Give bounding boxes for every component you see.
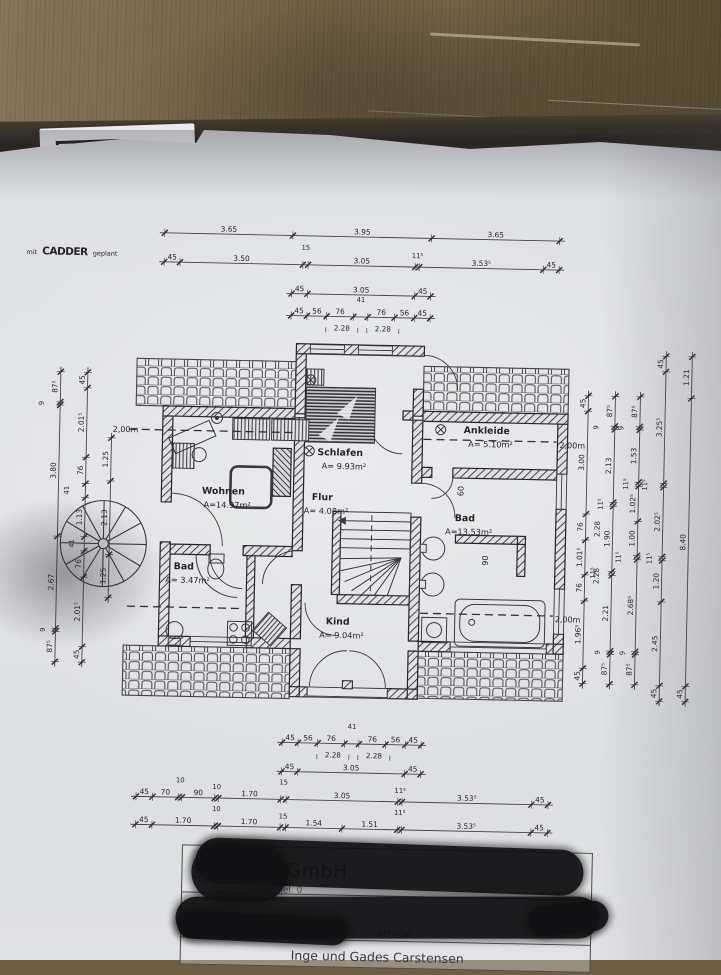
dimension-label: 45 (139, 815, 149, 824)
dimension-label: 45 (578, 398, 587, 408)
floor-plan-drawing: 3.653.953.65453.50153.0511⁵3.53⁵45453.05… (0, 0, 721, 967)
roof-hatch-top-left (136, 358, 296, 408)
plan-annotation: 90 (481, 555, 490, 565)
dimension-label: 9 (617, 426, 625, 430)
redaction-mark (191, 843, 288, 903)
sub-dimension-label: 2.28 (593, 520, 602, 537)
dimension-label: 70 (161, 787, 171, 796)
dimension-label: 15 (301, 244, 310, 252)
dimension-label: 1.70 (241, 817, 258, 826)
dimension-label: 3.53⁵ (472, 259, 492, 268)
dimension-label: 76 (74, 559, 83, 569)
dimension-label: 87⁵ (50, 380, 59, 393)
dimension-label: 2.45 (650, 635, 659, 652)
dimension-chain: 453.0545 (276, 762, 425, 779)
dimension-label: 56 (391, 735, 401, 744)
dimension-label: 1.90 (602, 530, 611, 547)
door-mullion (342, 681, 352, 689)
dimension-label: 2.01⁵ (73, 602, 82, 622)
dimension-label: 1.51 (361, 820, 378, 829)
dimension-label: 45 (167, 252, 177, 261)
dimension-label: 9 (619, 651, 627, 655)
dimension-label: 45 (285, 762, 295, 771)
dimension-label: 1.54 (306, 818, 323, 827)
dimension-label: 2.21 (601, 605, 610, 622)
balcony-door-arc (348, 651, 386, 689)
dimension-chain: 451.70101.70151.541.5111⁵3.53⁵45 (130, 803, 552, 837)
dimension-label: 11⁵ (614, 551, 622, 563)
dimension-label: 3.53⁵ (456, 822, 476, 831)
sub-dimension-label: 2.28 (366, 751, 383, 760)
dimension-chain: 3.653.953.65 (160, 223, 565, 245)
dimension-label: 3.05 (334, 791, 351, 800)
dimension-label: 45 (534, 823, 544, 832)
dimension-label: 56 (400, 308, 410, 317)
roof-hatch-bottom-left (122, 645, 290, 698)
dimension-label: 76 (335, 307, 345, 316)
dimension-label: 1.96⁵ (573, 625, 582, 645)
bathtub (454, 599, 545, 648)
dimension-label: 3.25⁵ (655, 418, 664, 438)
ceiling-light-symbol (304, 446, 314, 456)
dimension-label: 8.40 (678, 534, 687, 551)
photo-of-floor-plan: { "logo": {"prefix": "mit", "brand": "CA… (0, 0, 721, 960)
balcony-door-arc (309, 650, 347, 688)
dimension-label: 3.05 (353, 285, 370, 294)
room-area: A= 9.93m² (322, 461, 367, 472)
door-arc (431, 477, 452, 498)
room-name: Bad (455, 513, 475, 524)
dimension-label: 3.05 (353, 256, 370, 265)
dimension-label: 76 (576, 522, 585, 532)
plan-annotation: 2,00m (113, 425, 139, 435)
dimension-label: 1.02⁵ (628, 494, 637, 514)
dimension-label: 45 (72, 649, 81, 659)
room-area: A= 5.10m² (468, 439, 513, 450)
dimension-label: 2.02⁵ (653, 512, 662, 532)
room-name: Kind (326, 616, 350, 627)
washbasin (420, 537, 445, 561)
dimension-label: 1.25 (98, 567, 107, 584)
dimension-label: 45 (675, 689, 684, 699)
dimension-label: 11⁵ (622, 478, 630, 490)
wardrobe (271, 419, 308, 441)
dimension-label: 3.95 (354, 227, 371, 236)
washing-machine (421, 617, 447, 643)
dimension-chain: 1.252.131.25 (98, 433, 116, 603)
dimension-chain: 453.00761.01⁵761.96⁵45 (572, 391, 592, 689)
dimension-label: 1.20 (651, 573, 660, 590)
room-area: A=14.97m² (203, 499, 250, 510)
dimension-label: 45 (649, 688, 658, 698)
plan-annotation: 2,00m (559, 441, 585, 451)
dimension-label: 2.67 (46, 574, 55, 591)
dimension-label: 45 (535, 795, 545, 804)
dimension-chain: 45701090101.70153.0511⁵3.53⁵45 (131, 775, 553, 809)
window (310, 344, 344, 354)
dimension-chain: 453.50153.0511⁵3.53⁵45 (159, 241, 564, 274)
room-area: A= 4.08m² (304, 505, 349, 516)
dimension-label: 2.68⁵ (626, 596, 635, 616)
room-name: Bad (174, 561, 194, 572)
dimension-label: 3.80 (49, 462, 58, 479)
dimension-label: 76 (376, 308, 386, 317)
dimension-label: 2.01⁵ (77, 413, 86, 433)
sub-dimension-label: 2.28 (334, 323, 351, 332)
room-name: Wohnen (202, 486, 245, 498)
dimension-chain: 45567641765645 (277, 721, 426, 749)
room-area: A= 9.04m² (319, 630, 364, 641)
room-name: Schlafen (317, 447, 363, 459)
dimension-label: 11⁵ (394, 787, 406, 795)
sub-dimension-label: 2.28 (325, 750, 342, 759)
sub-dimension-label: 2.28 (375, 324, 392, 333)
dimension-label: 11⁵ (641, 479, 649, 491)
sub-dimension-label: 2.28 (592, 567, 601, 584)
dimension-label: 45 (656, 359, 665, 369)
dimension-label: 3.00 (577, 454, 586, 471)
room-area: A=13.53m² (445, 526, 492, 537)
dimension-label: 45 (418, 287, 428, 296)
dimension-label: 1.13 (75, 509, 84, 526)
dimension-label: 45 (547, 260, 557, 269)
dimension-chain: 87⁵93.802.67987⁵ (32, 366, 65, 666)
dimension-label: 45 (78, 375, 87, 385)
dimension-label: 11⁵ (394, 809, 406, 817)
dimension-chain: 1.218.4045 (675, 352, 696, 707)
dimension-label: 9 (39, 627, 47, 631)
dimension-label: 87⁵ (45, 640, 54, 653)
dimension-label: 76 (76, 465, 85, 475)
room-name: Flur (312, 492, 334, 503)
dimension-chain: 45567641765645 (286, 294, 435, 322)
dimension-label: 3.50 (233, 254, 250, 263)
dimension-chain: 452.01⁵76411.1341762.01⁵45 (59, 367, 92, 667)
dimension-label: 76 (574, 583, 583, 593)
dimension-label: 45 (573, 671, 582, 681)
roof-hatch-bottom-right (417, 651, 563, 701)
dimension-label: 45 (409, 736, 419, 745)
winder-tread (351, 557, 401, 592)
dimension-label: 15 (279, 778, 288, 786)
dimension-label: 10 (212, 805, 221, 813)
builder-name: Inge und Gades Carstensen (291, 948, 464, 967)
dimension-label: 87⁵ (600, 663, 609, 676)
dimension-label: 87⁵ (605, 405, 614, 418)
dimension-label: 45 (417, 309, 427, 318)
dimension-label: 56 (312, 306, 322, 315)
dimension-label: 1.01⁵ (575, 548, 584, 568)
dimension-label: 10 (176, 776, 185, 784)
dimension-label: 76 (326, 734, 336, 743)
plan-annotation: 60 (456, 486, 465, 496)
door-arc (421, 483, 456, 518)
dimension-label: 41 (68, 539, 76, 548)
dimension-label: 56 (303, 733, 313, 742)
spiral-tread (60, 543, 103, 544)
dimension-label: 2.13 (604, 457, 613, 474)
dimension-label: 10 (212, 783, 221, 791)
room-name: Ankleide (464, 425, 510, 437)
dimension-label: 87⁵ (625, 663, 634, 676)
dimension-label: 9 (592, 425, 600, 429)
roof-hatch-top-right (423, 366, 569, 414)
dimension-label: 11⁵ (412, 252, 424, 260)
dimension-chain: 87⁵91.5311⁵1.02⁵1.0011⁵2.68⁵987⁵ (612, 391, 645, 689)
chimney (272, 448, 291, 496)
window (358, 345, 392, 355)
dimension-label: 11⁵ (597, 498, 605, 510)
dimension-label: 3.65 (221, 225, 238, 234)
dimension-label: 1.70 (241, 789, 258, 798)
dimension-label: 1.25 (101, 451, 110, 468)
dimension-label: 1.21 (682, 369, 691, 386)
dimension-label: 1.53 (629, 447, 638, 464)
dimension-label: 45 (285, 733, 295, 742)
dimension-chain: 87⁵92.1311⁵1.9011⁵2.21987⁵ (587, 391, 620, 689)
dimension-label: 1.00 (627, 530, 636, 547)
dimension-label: 3.53⁵ (457, 794, 477, 803)
dimension-label: 3.65 (487, 230, 504, 239)
winder-tread (361, 557, 401, 596)
lamp-dot (215, 416, 218, 419)
dimension-label: 9 (38, 401, 46, 405)
dimension-label: 45 (140, 787, 150, 796)
dimension-label: 41 (348, 723, 357, 731)
dimension-label: 11⁵ (645, 552, 653, 564)
dimension-label: 41 (63, 486, 71, 495)
dimension-label: 87⁵ (630, 405, 639, 418)
dimension-label: 1.70 (175, 816, 192, 825)
dimension-label: 41 (357, 296, 366, 304)
window (553, 589, 564, 634)
plan-annotation: 2,00m (555, 615, 581, 625)
dimension-label: 2.13 (100, 509, 109, 526)
washbasin (419, 573, 444, 597)
printed-drawing: mit CADDER geplant (0, 0, 721, 967)
window (556, 474, 567, 509)
room-area: A= 3.47m² (165, 574, 210, 585)
dimension-label: 45 (295, 284, 305, 293)
dimension-label: 15 (279, 812, 288, 820)
ceiling-light-symbol (436, 425, 446, 435)
dimension-label: 3.05 (343, 763, 360, 772)
dimension-label: 76 (368, 735, 378, 744)
dimension-label: 45 (408, 765, 418, 774)
wardrobe (232, 418, 269, 440)
door-arc (209, 555, 243, 589)
winder-staircase (336, 512, 411, 597)
dimension-label: 90 (194, 788, 204, 797)
dimension-label: 45 (294, 306, 304, 315)
dimension-label: 9 (594, 650, 602, 654)
dimension-chain: 453.25⁵11⁵2.02⁵11⁵1.202.4545 (637, 351, 671, 706)
stair-walk-line (370, 515, 372, 592)
